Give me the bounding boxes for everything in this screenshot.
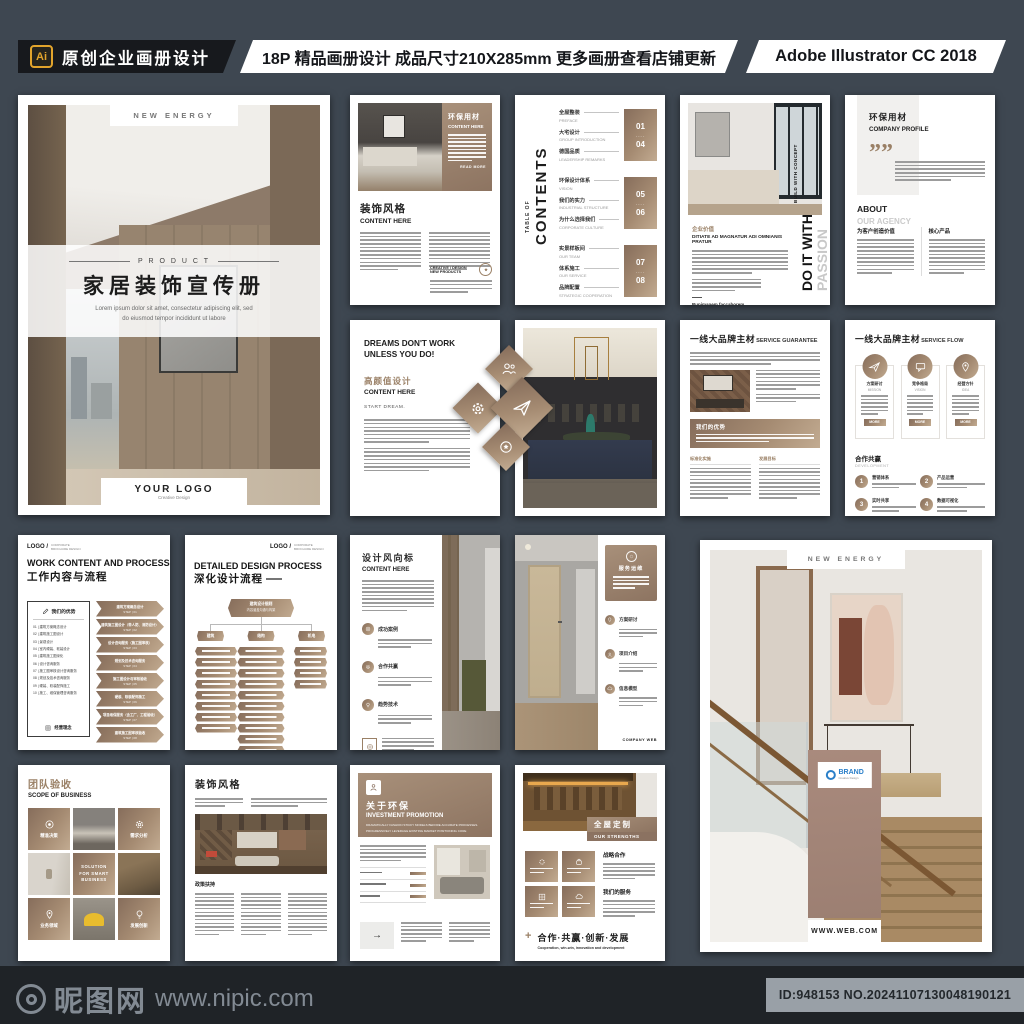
livingroom-photo xyxy=(434,845,490,899)
feature-row xyxy=(360,867,426,879)
profile-subtitle: COMPANY PROFILE xyxy=(869,126,929,133)
process-tree: 建筑设计细则 内容涵盖沟通与构架 建筑 结构 机电 xyxy=(193,599,329,742)
value-subheading: DITIATE AD MAGNATUR ADI OMNIANIS PRATUR xyxy=(692,235,788,245)
eco-panel: 环保用材 CONTENT HERE READ MORE xyxy=(442,103,492,191)
flow-card-title: 竞争格局 xyxy=(905,381,936,387)
cloud-icon xyxy=(605,684,615,694)
gear-icon xyxy=(470,400,487,417)
pin-icon xyxy=(44,909,55,920)
arrow-box: → xyxy=(360,922,394,949)
cover-logo-sub: Creative Design xyxy=(158,495,190,500)
cover-logo-text: YOUR LOGO xyxy=(134,484,213,495)
plus-mark: + xyxy=(525,931,531,942)
more-button: MORE xyxy=(955,419,977,426)
work-title-en: WORK CONTENT AND PROCESS xyxy=(27,558,170,568)
tree-node xyxy=(294,669,327,678)
toc-item: 体系施工OUR SERVICE xyxy=(559,265,619,279)
build-with-concept-vertical: BUILD WITH CONCEPT xyxy=(793,144,798,203)
toc-page-range: 05----06 xyxy=(624,177,657,229)
text-lines xyxy=(360,845,426,861)
custom-title: 全屋定制 xyxy=(587,817,657,832)
col2-title: 核心产品 xyxy=(929,227,986,235)
text-lines xyxy=(241,893,280,937)
flow-card: 方案研讨 MISSION MORE xyxy=(855,365,894,439)
page-detailed-process: LOGO / CORPORATE BROCHURE DESIGN DETAILE… xyxy=(185,535,337,750)
flow-card: 经营方针 IDEA MORE xyxy=(946,365,985,439)
tree-node xyxy=(294,680,327,689)
text-lines xyxy=(756,370,820,390)
page-cover: NEW ENERGY P R O D U C T 家居装饰宣传册 Lorem i… xyxy=(18,95,330,515)
flow-title-cn: 一线大品牌主材 xyxy=(855,332,920,345)
gear-icon xyxy=(134,819,145,830)
text-lines xyxy=(449,922,490,944)
tree-node xyxy=(195,702,237,711)
step-number: 4 xyxy=(920,498,933,511)
work-list-item: 05 | 建筑施工图深化 xyxy=(33,653,84,660)
team-tile: SOLUTION FOR SMART BUSINESS xyxy=(73,853,115,895)
guarantee-title-en: SERVICE GUARANTEE xyxy=(756,338,817,344)
vane-subtitle: CONTENT HERE xyxy=(362,567,434,573)
flow-card-title: 经营方针 xyxy=(950,381,981,387)
text-lines xyxy=(448,134,486,161)
text-lines xyxy=(364,419,470,443)
toc-item: 为什么选择我们CORPORATE CULTURE xyxy=(559,216,619,230)
contents-vertical-big: CONTENTS xyxy=(533,147,550,246)
service-item-label: 项目介绍 xyxy=(619,651,637,657)
staircase-photo: BRAND Creative Design WWW.WEB.COM xyxy=(710,550,982,942)
decor2-title: 装饰风格 xyxy=(195,776,327,791)
badge-icon xyxy=(362,661,374,673)
console-table xyxy=(824,724,914,726)
service-item-label: 信息模型 xyxy=(619,686,637,692)
text-lines xyxy=(613,576,649,589)
strategy-title: 战略合作 xyxy=(603,851,655,859)
paper-plane-icon xyxy=(869,361,881,373)
text-lines xyxy=(430,280,492,293)
work-list-item: 09 | 硬装、软装配饰施工 xyxy=(33,683,84,690)
text-lines xyxy=(692,250,788,274)
page-service-ops: 服务运维 方案研讨 项目介绍 信息模型 xyxy=(515,535,665,750)
service-item-label: 方案研讨 xyxy=(619,617,637,623)
site-url: www.nipic.com xyxy=(155,985,314,1013)
page-work-process: LOGO / CORPORATE BROCHURE DESIGN WORK CO… xyxy=(18,535,170,750)
text-lines xyxy=(401,922,442,944)
pin-icon xyxy=(960,361,972,373)
value-heading: 企业价值 xyxy=(692,225,788,233)
cover-logo-box: YOUR LOGO Creative Design xyxy=(101,478,247,505)
white-bedroom-photo xyxy=(688,103,822,215)
advantage-box: 我们的优势 01 | 建筑方案概念设计 02 | 建筑施工图设计 03 | 景观… xyxy=(27,601,90,737)
page-decor-style: 环保用材 CONTENT HERE READ MORE 装饰风格 CONTENT… xyxy=(350,95,500,305)
page-contents: TABLE OF CONTENTS 全屋整装PREFACE 大宅设计GROUP … xyxy=(515,95,665,305)
advantage-title: 我们的优势 xyxy=(696,423,814,431)
more-button: MORE xyxy=(909,419,931,426)
paper-plane-icon xyxy=(512,398,532,418)
toc-item: 环保设计体系VISION xyxy=(559,177,619,191)
feature-row xyxy=(360,879,426,891)
work-title-cn: 工作内容与流程 xyxy=(27,569,170,584)
dreams-headline: DREAMS DON'T WORKUNLESS YOU DO! xyxy=(364,338,474,360)
text-lines xyxy=(619,663,657,672)
toc-item: 德国品质LEADERSHIP REMARKS xyxy=(559,148,619,162)
our-service-title: 我们的服务 xyxy=(603,888,655,896)
work-list-item: 01 | 建筑方案概念设计 xyxy=(33,624,84,631)
slogan-en: Cooperation, win-win, innovation and dev… xyxy=(537,946,629,950)
cover-subtitle: Lorem ipsum dolor sit amet, consectetur … xyxy=(95,305,252,324)
numbered-item: 3 实时共享 xyxy=(855,498,920,513)
invest-title: 关于环保 xyxy=(366,799,484,812)
team-tile: 精准决策 xyxy=(28,808,70,850)
header-shop-banner: Ai 原创企业画册设计 xyxy=(18,40,236,73)
text-lines xyxy=(378,639,432,648)
step-number: 1 xyxy=(855,475,868,488)
passion-vertical: PASSION xyxy=(814,229,830,291)
loft-photo xyxy=(195,814,327,874)
header-promo-banner: 18P 精品画册设计 成品尺寸210X285mm 更多画册查看店铺更新 xyxy=(240,40,738,73)
service-block: 服务运维 xyxy=(605,545,657,601)
flow-card-sub: VISION xyxy=(905,388,936,392)
page-investment: 关于环保 INVESTMENT PROMOTION DRAMATICALLY F… xyxy=(350,765,500,961)
tree-node xyxy=(195,658,237,667)
nipic-logo-icon xyxy=(16,984,46,1014)
step-number: 2 xyxy=(920,475,933,488)
text-lines xyxy=(937,483,985,488)
material-photo xyxy=(690,370,750,412)
bedroom-photo xyxy=(358,103,442,191)
header-software-banner: Adobe Illustrator CC 2018 xyxy=(746,40,1006,73)
flow-card-sub: IDEA xyxy=(950,388,981,392)
invest-desc: PROGRESSIVELY LEVERAGE EXISTING MARKET P… xyxy=(366,829,484,833)
flow-card-title: 方案研讨 xyxy=(859,381,890,387)
team-tile: 需求分析 xyxy=(118,808,160,850)
people-icon xyxy=(605,649,615,659)
tile-photo-hardhat xyxy=(73,898,115,940)
page-team-scope: 团队验收 SCOPE OF BUSINESS 精准决策 需求分析 SOLUTIO… xyxy=(18,765,170,961)
flow-title-en: SERVICE FLOW xyxy=(921,338,963,344)
person-icon-box xyxy=(366,780,381,795)
process-step-arrow: 建筑方案概念设计STEP | 01 xyxy=(96,601,164,617)
col1-title: 为客户创造价值 xyxy=(857,227,914,235)
tile-photo-bedroom xyxy=(73,808,115,850)
text-lines xyxy=(603,863,655,879)
grid-icon xyxy=(538,893,546,901)
our-agency-label: OUR AGENCY xyxy=(857,217,911,226)
team-subtitle: SCOPE OF BUSINESS xyxy=(28,793,160,799)
tree-node xyxy=(195,669,237,678)
work-list-item: 07 | 施工图审核设计咨询服务 xyxy=(33,668,84,675)
tree-node xyxy=(238,735,285,744)
flow-card-sub: MISSION xyxy=(859,388,890,392)
feature-row xyxy=(360,891,426,904)
text-lines xyxy=(952,395,979,415)
text-lines xyxy=(362,580,434,611)
software-name: Adobe Illustrator CC 2018 xyxy=(775,47,977,66)
text-lines xyxy=(619,629,657,638)
team-tile: 业务领域 xyxy=(28,898,70,940)
work-list-item: 08 | 规划及技术咨询服务 xyxy=(33,675,84,682)
page-design-vane: 设计风向标 CONTENT HERE 成功案例 合作共赢 xyxy=(350,535,500,750)
work-list-item: 03 | 景观设计 xyxy=(33,639,84,646)
text-lines xyxy=(872,506,916,511)
tree-node xyxy=(238,746,285,750)
process-step-arrow: 硬装、软装配饰施工STEP | 06 xyxy=(96,691,164,707)
step-number: 3 xyxy=(855,498,868,511)
toc-group: 实景样板间OUR TEAM 体系施工OUR SERVICE 品牌配置STRATE… xyxy=(559,245,657,298)
policy-section-title: 政策扶持 xyxy=(195,881,327,888)
toc-item: 品牌配置STRATEGIC COOPERATION xyxy=(559,284,619,298)
brand-sub: Creative Design xyxy=(838,776,863,780)
text-lines xyxy=(364,448,470,472)
template-showcase-poster: Ai 原创企业画册设计 18P 精品画册设计 成品尺寸210X285mm 更多画… xyxy=(0,0,1024,1024)
guarantee-col1-title: 标准化实施 xyxy=(690,456,751,465)
brand-name: BRAND xyxy=(838,769,863,776)
toc-group: 环保设计体系VISION 我们的实力INDUSTRIAL STRUCTURE 为… xyxy=(559,177,657,230)
new-products-label: NEW PRODUCTS xyxy=(430,270,467,274)
process-step-arrow: 规划及技术咨询服务STEP | 04 xyxy=(96,655,164,671)
logo-label: LOGO / xyxy=(27,544,48,550)
gear-icon xyxy=(626,551,637,562)
bag-icon xyxy=(575,858,583,866)
frame-icon xyxy=(362,738,377,750)
toc-group: 全屋整装PREFACE 大宅设计GROUP INTRODUCTION 德国品质L… xyxy=(559,109,657,162)
text-lines xyxy=(756,394,820,403)
badge-icon xyxy=(362,699,374,711)
doors-photo xyxy=(515,535,598,750)
cooperation-sub: DEVELOPMENT xyxy=(855,464,985,468)
text-lines xyxy=(690,352,820,365)
tree-node xyxy=(294,647,327,656)
tree-node xyxy=(195,713,237,722)
pencil-icon xyxy=(42,608,49,615)
tree-node xyxy=(238,691,285,700)
tree-node xyxy=(238,702,285,711)
text-lines xyxy=(195,798,243,809)
text-lines xyxy=(603,900,655,916)
detail-title-en: DETAILED DESIGN PROCESS xyxy=(194,561,337,571)
cover-tag: NEW ENERGY xyxy=(110,105,238,126)
decor-subtitle: CONTENT HERE xyxy=(360,218,490,225)
work-list-item: 10 | 施工、维保管理咨询服务 xyxy=(33,690,84,697)
vane-item-label: 成功案例 xyxy=(378,626,398,633)
page-service-flow: 一线大品牌主材 SERVICE FLOW 方案研讨 MISSION MORE 竞… xyxy=(845,320,995,516)
text-lines xyxy=(696,434,814,443)
toc-item: 大宅设计GROUP INTRODUCTION xyxy=(559,129,619,143)
contents-vertical-small: TABLE OF xyxy=(525,200,531,233)
page-service-guarantee: 一线大品牌主材 SERVICE GUARANTEE 我们的优势 标准化实施 xyxy=(680,320,830,516)
text-lines xyxy=(619,697,657,706)
toc-item: 全屋整装PREFACE xyxy=(559,109,619,123)
numbered-item: 2 产品运营 xyxy=(920,475,985,490)
wall-art xyxy=(830,593,903,722)
strength-square xyxy=(525,886,558,917)
gear-icon xyxy=(538,858,546,866)
profile-title: 环保用材 xyxy=(869,111,929,123)
vane-title: 设计风向标 xyxy=(362,551,434,564)
tree-node xyxy=(238,713,285,722)
text-lines xyxy=(195,893,234,937)
cooperation-title: 合作共赢 xyxy=(855,453,985,463)
tree-node xyxy=(238,647,285,656)
tree-root-node: 建筑设计细则 内容涵盖沟通与构架 xyxy=(228,599,294,617)
text-lines xyxy=(690,468,751,499)
people-icon xyxy=(501,361,517,377)
invest-subtitle: INVESTMENT PROMOTION xyxy=(366,813,484,819)
medal-icon xyxy=(498,439,514,455)
read-more-label: READ MORE xyxy=(448,165,486,169)
tree-node xyxy=(294,658,327,667)
cover-title: 家居装饰宣传册 xyxy=(83,270,265,300)
invest-desc: DRAMATICALLY FASHION STICKY MODELS BEFOR… xyxy=(366,823,484,827)
logo-label: LOGO / xyxy=(270,544,291,550)
grid-icon xyxy=(45,725,51,731)
dreams-cn-heading: 高颜值设计 xyxy=(364,375,474,387)
invest-band: 关于环保 INVESTMENT PROMOTION DRAMATICALLY F… xyxy=(358,773,492,837)
tile-photo-loft xyxy=(118,853,160,895)
toc-page-range: 01----04 xyxy=(624,109,657,161)
more-button: MORE xyxy=(864,419,886,426)
service-block-title: 服务运维 xyxy=(610,565,652,572)
company-web-label: COMPANY WEB xyxy=(623,738,657,742)
tree-node xyxy=(195,691,237,700)
process-step-arrow: 项目维保服务（含工厂、工程验收）STEP | 07 xyxy=(96,709,164,725)
tree-node xyxy=(238,658,285,667)
page-back-cover: BRAND Creative Design WWW.WEB.COM NEW EN… xyxy=(700,540,992,952)
text-lines xyxy=(907,395,934,415)
dreams-en-heading: CONTENT HERE xyxy=(364,389,474,396)
custom-label-band: 全屋定制 OUR STRENGTHS xyxy=(587,817,657,841)
guarantee-col2-title: 发展目标 xyxy=(759,456,820,465)
text-lines xyxy=(872,483,916,488)
page-company-profile: 环保用材 COMPANY PROFILE ”” ABOUT OUR AGENCY… xyxy=(845,95,995,305)
guarantee-title-cn: 一线大品牌主材 xyxy=(690,332,755,345)
process-step-arrow: 施工图设计与审核验收STEP | 05 xyxy=(96,673,164,689)
badge-icon xyxy=(362,623,374,635)
vane-item-label: 趋势技术 xyxy=(378,701,398,708)
text-lines xyxy=(861,395,888,415)
do-it-with-vertical: DO IT WITH xyxy=(799,214,815,291)
tree-node xyxy=(195,724,237,733)
tree-node xyxy=(195,680,237,689)
process-step-arrow: 建筑施工图设计（带人防、消防设计）STEP | 02 xyxy=(96,619,164,635)
image-id-strip: ID:948153 NO.20241107130048190121 xyxy=(766,978,1024,1012)
text-lines xyxy=(895,161,985,183)
philosophy-label: 经营理念 xyxy=(54,725,71,731)
chat-icon xyxy=(914,361,926,373)
team-tile: 发展创新 xyxy=(118,898,160,940)
process-step-arrow: 建筑施工图审核验收STEP | 08 xyxy=(96,727,164,743)
eco-panel-title: 环保用材 xyxy=(448,112,486,122)
stamp-icon xyxy=(479,263,492,276)
text-lines xyxy=(759,468,820,499)
toc-item: 实景样板间OUR TEAM xyxy=(559,245,619,259)
detail-title-cn: 深化设计流程 xyxy=(194,571,263,586)
cover-kicker: P R O D U C T xyxy=(138,258,210,265)
promo-text: 18P 精品画册设计 成品尺寸210X285mm 更多画册查看店铺更新 xyxy=(262,45,716,69)
tree-node xyxy=(238,669,285,678)
cover-title-band: P R O D U C T 家居装饰宣传册 Lorem ipsum dolor … xyxy=(28,245,320,337)
toc-page-range: 07----08 xyxy=(624,245,657,297)
page-passion: BUILD WITH CONCEPT DO IT WITH PASSION 企业… xyxy=(680,95,830,305)
brand-logo-icon xyxy=(825,770,835,780)
numbered-item: 4 数据可视化 xyxy=(920,498,985,513)
text-lines xyxy=(288,893,327,937)
work-list-item: 02 | 建筑施工图设计 xyxy=(33,631,84,638)
advantage-box-title: 我们的优势 xyxy=(52,608,76,615)
page-custom: 全屋定制 OUR STRENGTHS 战略合作 我们的服务 + 合作·共赢·创新… xyxy=(515,765,665,961)
tree-node xyxy=(195,647,237,656)
toc-item: 我们的实力INDUSTRIAL STRUCTURE xyxy=(559,197,619,211)
text-lines xyxy=(937,506,985,511)
cloud-icon xyxy=(575,893,583,901)
text-lines xyxy=(251,798,327,809)
text-lines xyxy=(378,715,432,724)
strength-square xyxy=(562,851,595,882)
text-lines xyxy=(266,578,292,582)
text-lines xyxy=(382,738,434,750)
tree-branch: 机电 xyxy=(298,631,325,641)
pin-icon xyxy=(605,615,615,625)
slogan-cn: 合作·共赢·创新·发展 xyxy=(537,931,629,944)
url-strip: WWW.WEB.COM xyxy=(808,920,881,942)
numbered-item: 1 营销体系 xyxy=(855,475,920,490)
process-step-arrow: 设计咨询服务（施工图审核）STEP | 03 xyxy=(96,637,164,653)
logo-sub-label: CORPORATE BROCHURE DESIGN xyxy=(51,544,85,552)
tree-node xyxy=(238,724,285,733)
strength-square xyxy=(562,886,595,917)
adobe-illustrator-icon: Ai xyxy=(30,45,53,68)
bulb-icon xyxy=(134,909,145,920)
page-decor-style-2: 装饰风格 政策扶持 xyxy=(185,765,337,961)
advantage-band: 我们的优势 xyxy=(690,419,820,448)
back-cover-tag: NEW ENERGY xyxy=(787,550,905,569)
tree-branch: 结构 xyxy=(248,631,275,641)
text-lines xyxy=(929,239,986,274)
eco-panel-subtitle: CONTENT HERE xyxy=(448,124,486,129)
text-lines xyxy=(857,239,914,274)
text-lines xyxy=(360,232,421,273)
hallway-photo xyxy=(442,535,500,750)
tile-photo-lamp xyxy=(28,853,70,895)
text-lines xyxy=(378,677,432,686)
flow-card: 竞争格局 VISION MORE xyxy=(901,365,940,439)
watermark-footer: 昵图网 www.nipic.com ID:948153 NO.202411071… xyxy=(0,966,1024,1024)
brand-label: BRAND Creative Design xyxy=(817,762,871,788)
target-icon xyxy=(44,819,55,830)
tree-node xyxy=(238,680,285,689)
creative-design-block: CREATIVE / DESIGN NEW PRODUCTS xyxy=(430,263,492,295)
brand-panel: BRAND Creative Design xyxy=(808,750,881,919)
strength-square xyxy=(525,851,558,882)
team-title: 团队验收 xyxy=(28,776,160,791)
signature-name: Runimanem faccaborem xyxy=(692,302,788,305)
vane-item-label: 合作共赢 xyxy=(378,663,398,670)
shop-title: 原创企业画册设计 xyxy=(62,45,210,69)
custom-subtitle: OUR STRENGTHS xyxy=(587,832,657,841)
decor-title: 装饰风格 xyxy=(360,201,490,216)
text-lines xyxy=(692,279,761,292)
work-list-item: 04 | 室内硬装、软装设计 xyxy=(33,646,84,653)
work-list-item: 06 | 设计咨询服务 xyxy=(33,661,84,668)
logo-sub-label: CORPORATE BROCHURE DESIGN xyxy=(294,544,328,552)
about-label: ABOUT xyxy=(857,204,887,214)
site-name: 昵图网 xyxy=(54,978,147,1020)
tree-branch: 建筑 xyxy=(197,631,224,641)
